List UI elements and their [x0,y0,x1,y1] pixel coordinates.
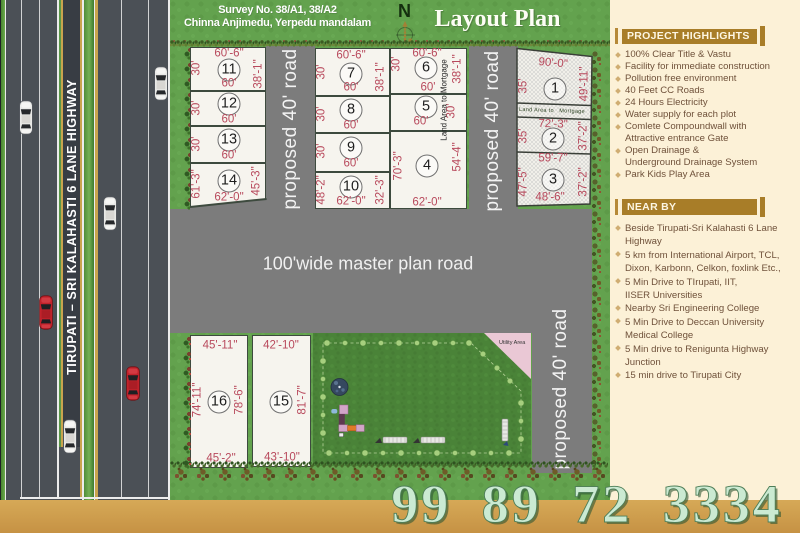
svg-text:Utility Area: Utility Area [499,340,526,346]
